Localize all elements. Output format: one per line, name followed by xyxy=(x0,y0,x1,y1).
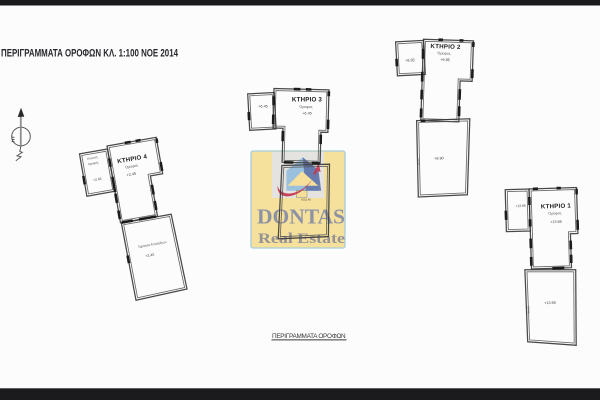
svg-text:+6.45: +6.45 xyxy=(258,105,268,109)
svg-text:ΚΤΗΡΙΟ 3: ΚΤΗΡΙΟ 3 xyxy=(292,97,322,104)
svg-text:ΚΩΔ.45: ΚΩΔ.45 xyxy=(301,198,311,202)
svg-text:+13.95: +13.95 xyxy=(515,204,526,208)
svg-text:ΠΕΡΙΓΡΑΜΜΑΤΑ ΟΡΟΦΩΝ ΚΛ. 1:100: ΠΕΡΙΓΡΑΜΜΑΤΑ ΟΡΟΦΩΝ ΚΛ. 1:100 ΝΟΕ 2014 xyxy=(1,47,178,59)
svg-text:+6.45: +6.45 xyxy=(302,112,312,116)
svg-text:Όροφος: Όροφος xyxy=(299,105,313,109)
svg-text:DONTAS: DONTAS xyxy=(257,205,345,229)
svg-text:ΠΕΡΙΓΡΑΜΜΑΤΑ ΟΡΟΦΩΝ: ΠΕΡΙΓΡΑΜΜΑΤΑ ΟΡΟΦΩΝ xyxy=(272,333,346,340)
svg-text:Όροφος: Όροφος xyxy=(437,51,451,55)
svg-text:+9.85: +9.85 xyxy=(405,58,415,62)
svg-text:14.00: 14.00 xyxy=(526,306,530,314)
svg-text:ΚΤΗΡΙΟ 2: ΚΤΗΡΙΟ 2 xyxy=(430,43,461,51)
svg-text:+13.95: +13.95 xyxy=(550,220,562,224)
svg-text:16.50: 16.50 xyxy=(416,158,420,166)
svg-text:Όροφος: Όροφος xyxy=(547,211,561,215)
svg-text:Real Estate: Real Estate xyxy=(258,231,345,247)
svg-text:+13.95: +13.95 xyxy=(544,301,556,305)
svg-text:+9.90: +9.90 xyxy=(434,156,444,160)
svg-text:ΚΤΗΡΙΟ 1: ΚΤΗΡΙΟ 1 xyxy=(541,202,572,210)
svg-text:+9.85: +9.85 xyxy=(440,58,450,62)
